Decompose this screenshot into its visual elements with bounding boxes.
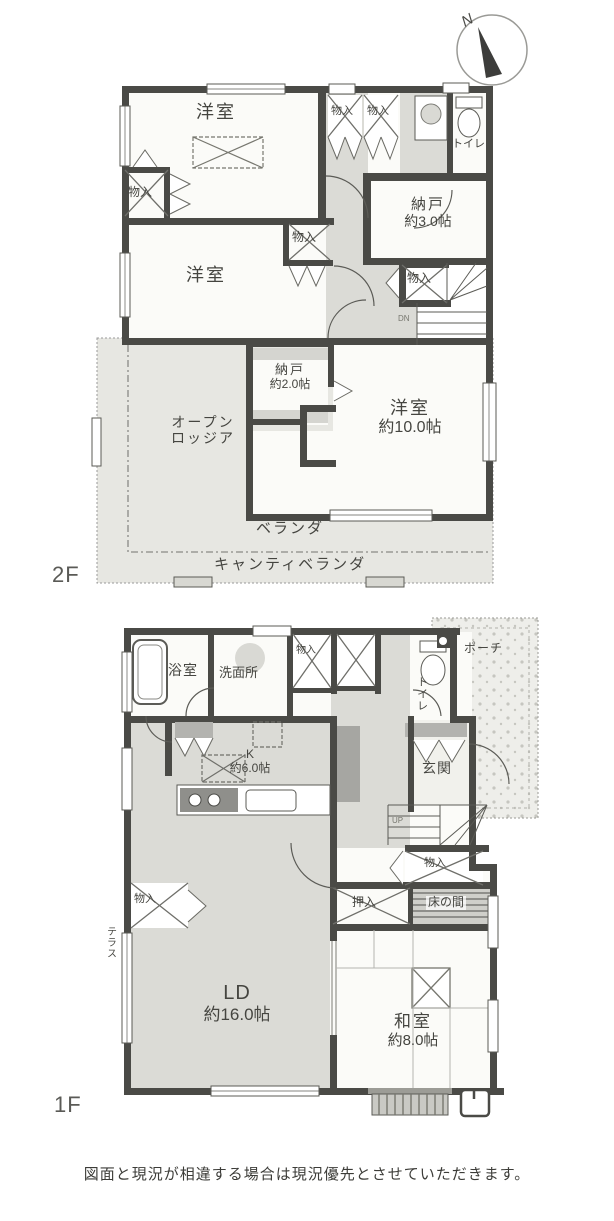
room-label-yoshitsu10: 洋室 約10.0帖 [345,398,475,437]
bathtub-icon [133,640,167,704]
sink-icon [246,790,296,811]
washitsu-label: 和室 約8.0帖 [358,1012,468,1049]
stairs-dn-label: DN [398,314,410,323]
cantilever-veranda-label: キャンティベランダ [214,556,366,573]
bath-label: 浴室 [168,662,198,678]
floorplan-graphics [0,0,614,1221]
floorplan-page: N 洋室 物入 物入 物入 トイレ 納戸 約3.0帖 物入 洋室 物入 DN 納… [0,0,614,1221]
toilet-icon-2f [456,97,482,137]
closet-label-2f-mid: 物入 [292,231,316,245]
entrance-label: 玄関 [422,760,452,776]
closet-label-2f-top-a: 物入 [331,105,353,118]
room-label-open-loggia: オープン ロッジア [148,414,258,446]
disclaimer-text: 図面と現況が相違する場合は現況優先とさせていただきます。 [0,1163,614,1184]
kitchen-counter-icon [177,785,330,815]
floor1-plan [122,618,538,1116]
floor1-label: 1F [54,1092,82,1117]
step-strip-icon [368,1088,452,1115]
closet-label-2f-stairs: 物入 [407,272,431,286]
room-label-nando2: 納戸 約2.0帖 [250,363,330,392]
closet-label-2f-top-b: 物入 [367,105,389,118]
closet-label-1f-top: 物入 [296,645,316,657]
closet-label-under-stairs: 物入 [424,857,446,870]
stairs-up-label: UP [392,816,403,825]
room-label-nando3: 納戸 約3.0帖 [369,196,487,229]
toilet-label-1f: トイレ [415,676,428,712]
north-arrow [478,27,502,78]
room-label-yoshitsu1: 洋室 [196,102,236,123]
ld-label: LD 約16.0帖 [162,982,312,1025]
floor2-label: 2F [52,562,80,587]
oshiire-label: 押入 [352,896,376,910]
veranda-label: ベランダ [256,520,324,537]
closet-label-ld: 物入 [134,893,156,906]
floor2-plan [92,83,496,587]
porch-label: ポーチ [464,642,503,656]
washroom-label: 洗面所 [219,666,258,681]
tokonoma-label: 床の間 [426,896,466,910]
kitchen-label: K 約6.0帖 [205,748,295,776]
room-label-yoshitsu2: 洋室 [186,265,226,286]
terrace-label: テラス [104,926,116,959]
toilet-label-2f: トイレ [452,138,485,151]
closet-label-2f-left: 物入 [128,186,152,200]
